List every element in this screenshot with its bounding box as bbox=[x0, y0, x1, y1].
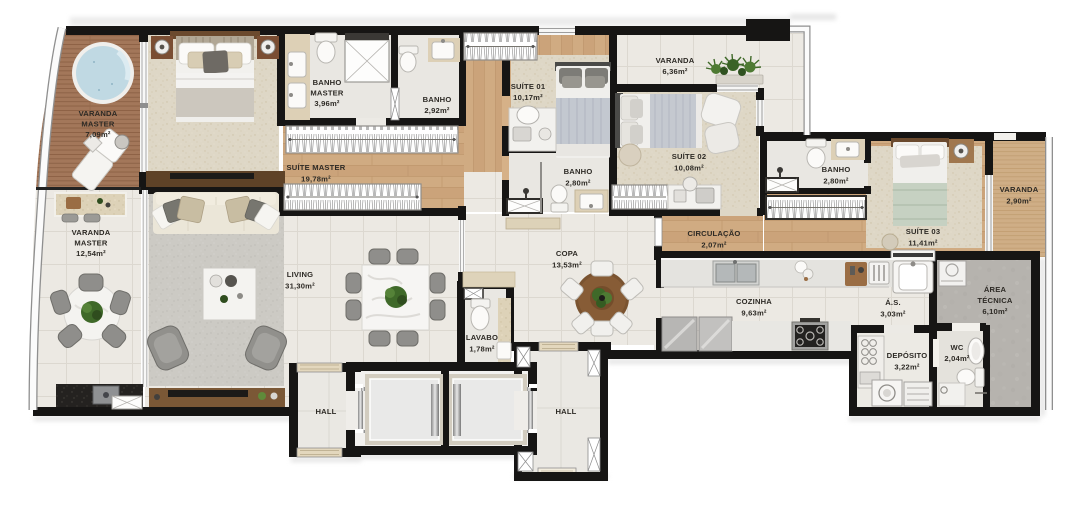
svg-text:SUÍTE 02: SUÍTE 02 bbox=[672, 152, 707, 161]
svg-text:MASTER: MASTER bbox=[310, 89, 344, 98]
svg-text:DEPÓSITO: DEPÓSITO bbox=[887, 351, 928, 360]
svg-text:MASTER: MASTER bbox=[81, 120, 115, 129]
svg-text:2,80m²: 2,80m² bbox=[565, 179, 591, 188]
svg-text:10,08m²: 10,08m² bbox=[674, 164, 704, 173]
svg-text:6,36m²: 6,36m² bbox=[662, 67, 688, 76]
svg-text:VARANDA: VARANDA bbox=[72, 228, 111, 237]
svg-text:SUÍTE 01: SUÍTE 01 bbox=[511, 82, 546, 91]
svg-text:TÉCNICA: TÉCNICA bbox=[977, 296, 1012, 305]
svg-text:ÁREA: ÁREA bbox=[984, 285, 1007, 294]
svg-text:3,03m²: 3,03m² bbox=[880, 310, 906, 319]
svg-text:11,41m²: 11,41m² bbox=[908, 239, 938, 248]
svg-text:1,78m²: 1,78m² bbox=[469, 345, 495, 354]
svg-text:3,22m²: 3,22m² bbox=[894, 363, 920, 372]
svg-text:VARANDA: VARANDA bbox=[79, 109, 118, 118]
svg-text:VARANDA: VARANDA bbox=[656, 56, 695, 65]
svg-text:2,90m²: 2,90m² bbox=[1006, 197, 1032, 206]
svg-text:9,63m²: 9,63m² bbox=[741, 309, 767, 318]
svg-text:2,92m²: 2,92m² bbox=[424, 106, 450, 115]
svg-text:3,96m²: 3,96m² bbox=[314, 99, 340, 108]
svg-text:SUÍTE 03: SUÍTE 03 bbox=[906, 227, 941, 236]
svg-text:BANHO: BANHO bbox=[822, 165, 851, 174]
svg-text:13,53m²: 13,53m² bbox=[552, 261, 582, 270]
svg-text:2,80m²: 2,80m² bbox=[823, 177, 849, 186]
svg-text:MASTER: MASTER bbox=[74, 239, 108, 248]
svg-text:2,07m²: 2,07m² bbox=[701, 241, 727, 250]
svg-text:BANHO: BANHO bbox=[423, 95, 452, 104]
svg-text:10,17m²: 10,17m² bbox=[513, 93, 543, 102]
svg-text:COPA: COPA bbox=[556, 249, 578, 258]
svg-text:WC: WC bbox=[950, 343, 963, 352]
svg-text:BANHO: BANHO bbox=[564, 167, 593, 176]
svg-text:HALL: HALL bbox=[555, 407, 576, 416]
svg-text:6,10m²: 6,10m² bbox=[982, 307, 1008, 316]
svg-text:31,30m²: 31,30m² bbox=[285, 282, 315, 291]
svg-text:2,04m²: 2,04m² bbox=[944, 354, 970, 363]
svg-text:CIRCULAÇÃO: CIRCULAÇÃO bbox=[687, 229, 740, 238]
svg-text:BANHO: BANHO bbox=[313, 78, 342, 87]
svg-text:12,54m²: 12,54m² bbox=[76, 249, 106, 258]
svg-text:19,78m²: 19,78m² bbox=[301, 175, 331, 184]
svg-text:HALL: HALL bbox=[315, 407, 336, 416]
svg-text:SUÍTE MASTER: SUÍTE MASTER bbox=[287, 163, 346, 172]
svg-text:LAVABO: LAVABO bbox=[466, 333, 498, 342]
svg-text:LIVING: LIVING bbox=[287, 270, 314, 279]
svg-text:Á.S.: Á.S. bbox=[885, 298, 901, 307]
svg-text:VARANDA: VARANDA bbox=[1000, 185, 1039, 194]
svg-text:COZINHA: COZINHA bbox=[736, 297, 772, 306]
svg-text:7,09m²: 7,09m² bbox=[85, 130, 111, 139]
